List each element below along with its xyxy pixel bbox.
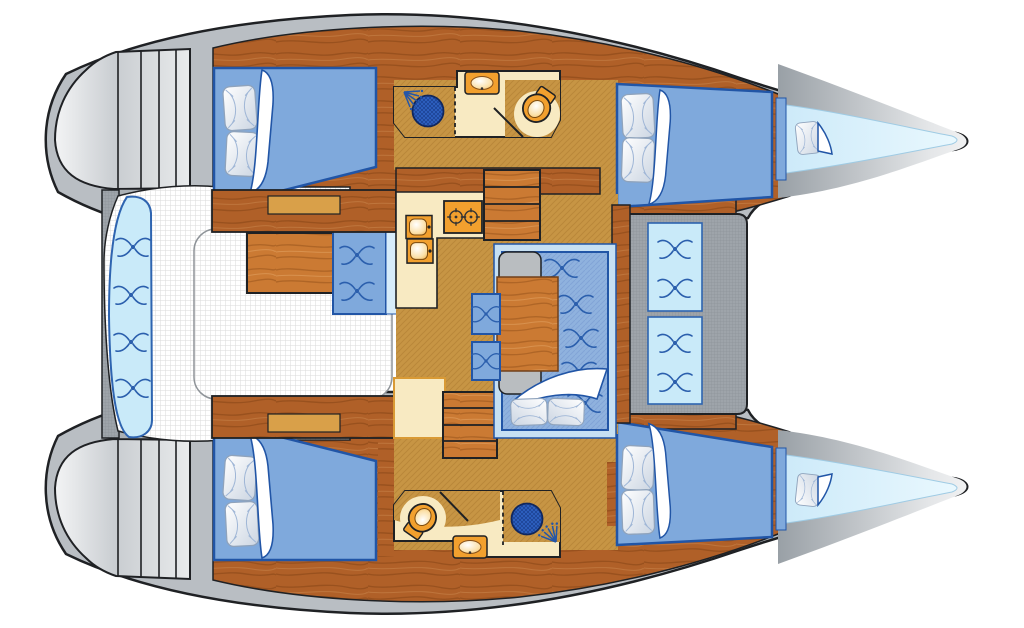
cockpit-curved-bench <box>109 197 152 438</box>
stairs-starboard: Companionway steps (starboard hull) <box>443 392 497 458</box>
cabin-fwd-port: Forward double cabin (port) <box>617 84 772 207</box>
bow-berth-step <box>776 98 786 180</box>
shower-tray <box>512 504 543 535</box>
foredeck-cushion-1 <box>648 223 702 311</box>
salon-table <box>497 277 558 371</box>
salon-aft-wall-port <box>212 190 396 232</box>
entry-step <box>268 196 340 214</box>
galley-cabinet <box>394 378 445 438</box>
shower-tray <box>413 96 444 127</box>
bow-starboard <box>776 430 967 564</box>
salon-aft-wall-starboard <box>212 396 396 438</box>
stairs-port: Companionway steps (port hull) <box>484 170 540 240</box>
bow-port: Forepeak berth (port) <box>776 64 967 198</box>
foredeck-cushion-2 <box>648 317 702 404</box>
entry-step <box>268 414 340 432</box>
forward-cockpit: Forward cockpit seats <box>618 199 747 429</box>
cockpit-seat-cushion: Cockpit seat cushion <box>333 231 386 314</box>
catamaran-floor-plan: Catamaran interior layout floor plan <box>0 0 1024 628</box>
cabin-aft-starboard: Aft double cabin (starboard) <box>214 435 376 560</box>
cockpit-table: Cockpit table <box>247 233 333 293</box>
floor-plan-stage: Catamaran interior layout floor plan <box>0 0 1024 628</box>
cabin-aft-port: Aft double cabin (port) <box>214 68 376 193</box>
